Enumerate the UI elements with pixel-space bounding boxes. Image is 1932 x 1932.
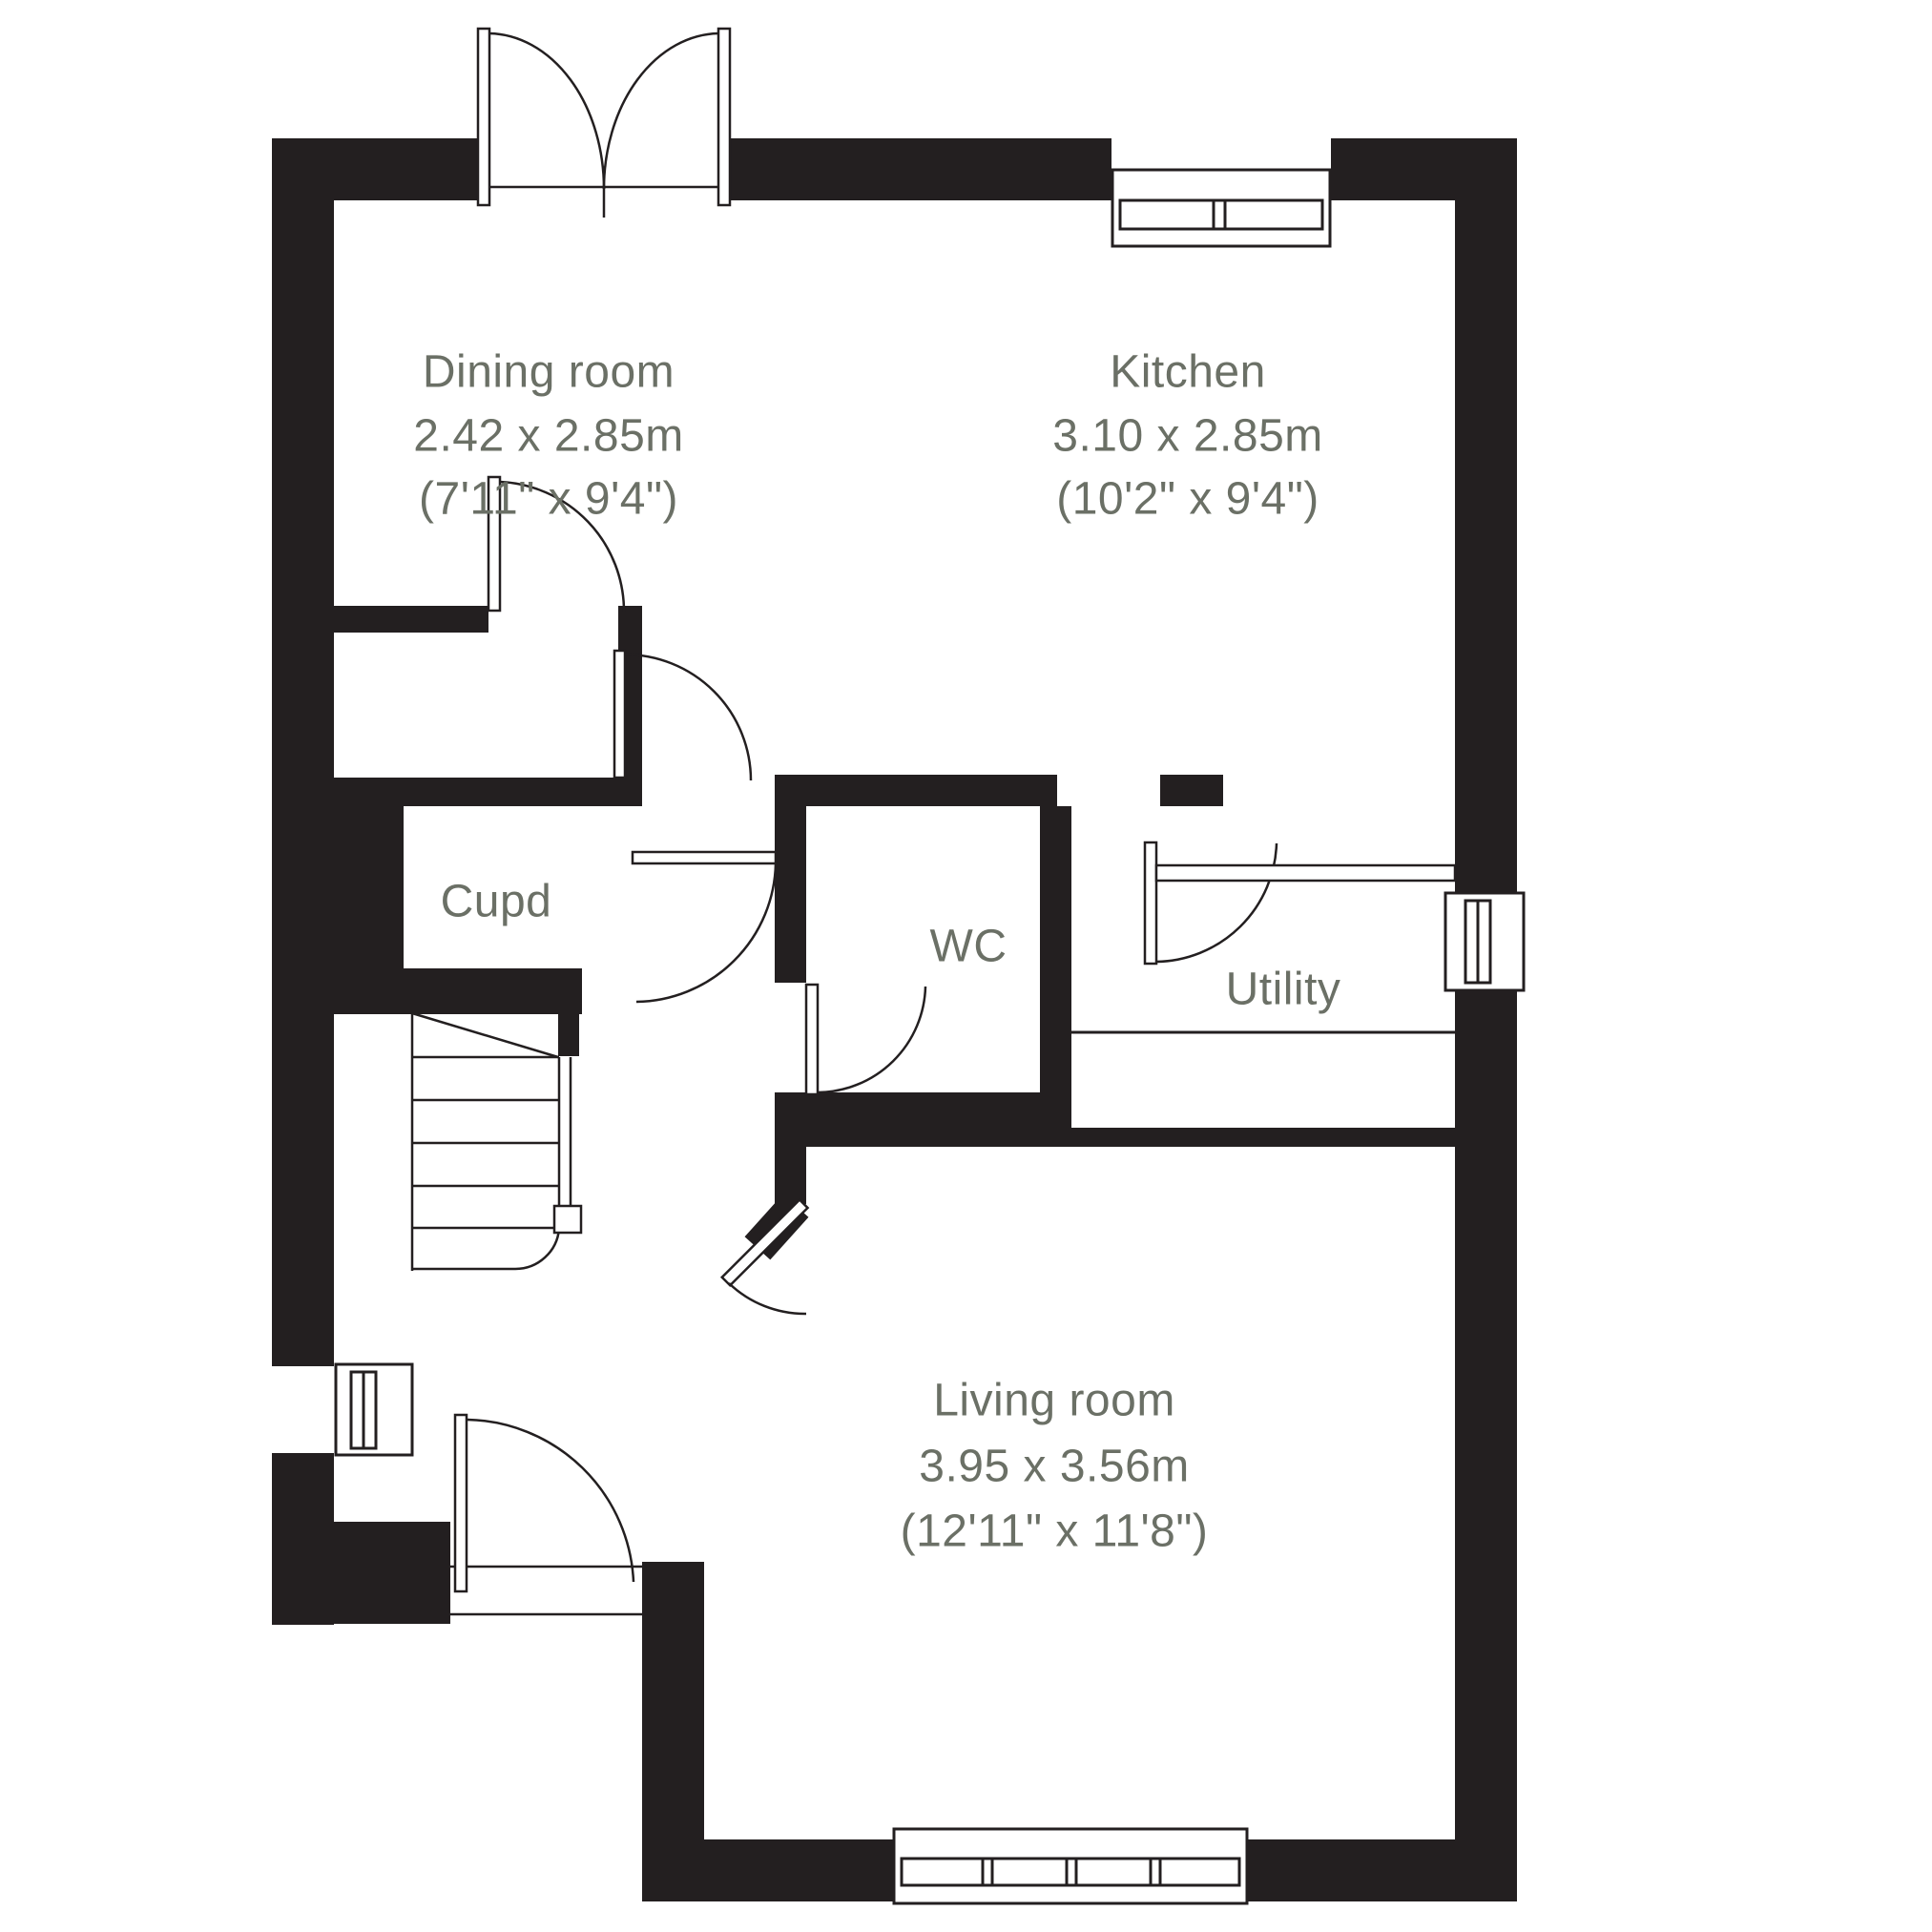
stairs <box>412 1013 581 1271</box>
front-door <box>450 1415 642 1614</box>
dining-room-size-imperial: (7'11" x 9'4") <box>419 473 678 526</box>
wall-segment <box>272 138 477 200</box>
walls <box>272 138 1517 1901</box>
wall-segment <box>558 1014 579 1056</box>
wall-segment <box>1455 200 1517 895</box>
living-room-size-metric: 3.95 x 3.56m <box>919 1441 1190 1493</box>
door-arc <box>636 863 776 1002</box>
living-room-label: Living room <box>933 1375 1175 1427</box>
wall-segment <box>334 778 618 806</box>
cupboard-label: Cupd <box>441 876 552 928</box>
wall-segment <box>1331 138 1517 200</box>
door-arc <box>467 1420 634 1582</box>
wall-segment <box>775 775 1057 806</box>
utility-partition <box>1156 865 1455 881</box>
stairs-bottom-curve <box>412 1229 559 1269</box>
living-room-size-imperial: (12'11" x 11'8") <box>901 1506 1209 1558</box>
kitchen-size-imperial: (10'2" x 9'4") <box>1056 473 1319 526</box>
wc-label: WC <box>930 921 1008 973</box>
kitchen-window <box>1112 170 1330 246</box>
wall-segment <box>642 1562 704 1839</box>
door-arc <box>729 1283 806 1314</box>
door-arc <box>818 987 925 1092</box>
dining-room-label: Dining room <box>423 346 675 399</box>
cupboard-door <box>633 852 776 1002</box>
wall-segment <box>334 968 582 1014</box>
utility-door <box>1145 842 1277 964</box>
wall-segment <box>272 200 334 1366</box>
door-arc <box>604 33 718 189</box>
wall-segment <box>1247 1839 1517 1901</box>
wall-segment <box>642 1839 894 1901</box>
wall-segment <box>272 1453 334 1625</box>
wall-segment <box>1455 989 1517 1901</box>
wall-segment <box>334 606 488 633</box>
wall-segment <box>334 806 404 968</box>
wall-segment <box>775 806 806 983</box>
wall-segment <box>730 138 1111 200</box>
stairs-cut-line <box>412 1013 558 1057</box>
wall-segment <box>334 1522 450 1624</box>
wc-door <box>806 985 925 1094</box>
dining-room-size-metric: 2.42 x 2.85m <box>413 410 684 463</box>
door-arc <box>489 33 604 189</box>
stairs-newel-post <box>554 1206 581 1233</box>
wall-segment <box>1160 775 1223 806</box>
hall-window <box>336 1364 412 1455</box>
french-doors <box>478 29 730 218</box>
door-arc <box>625 654 751 780</box>
kitchen-label: Kitchen <box>1110 346 1266 399</box>
living-room-window <box>894 1829 1247 1903</box>
floor-plan: Dining room 2.42 x 2.85m (7'11" x 9'4") … <box>0 0 1932 1932</box>
wall-segment <box>1071 1128 1455 1147</box>
kitchen-size-metric: 3.10 x 2.85m <box>1052 410 1323 463</box>
utility-label: Utility <box>1226 964 1341 1016</box>
wall-segment <box>775 1092 1071 1147</box>
utility-window <box>1445 893 1524 990</box>
door-arc <box>1156 843 1277 962</box>
